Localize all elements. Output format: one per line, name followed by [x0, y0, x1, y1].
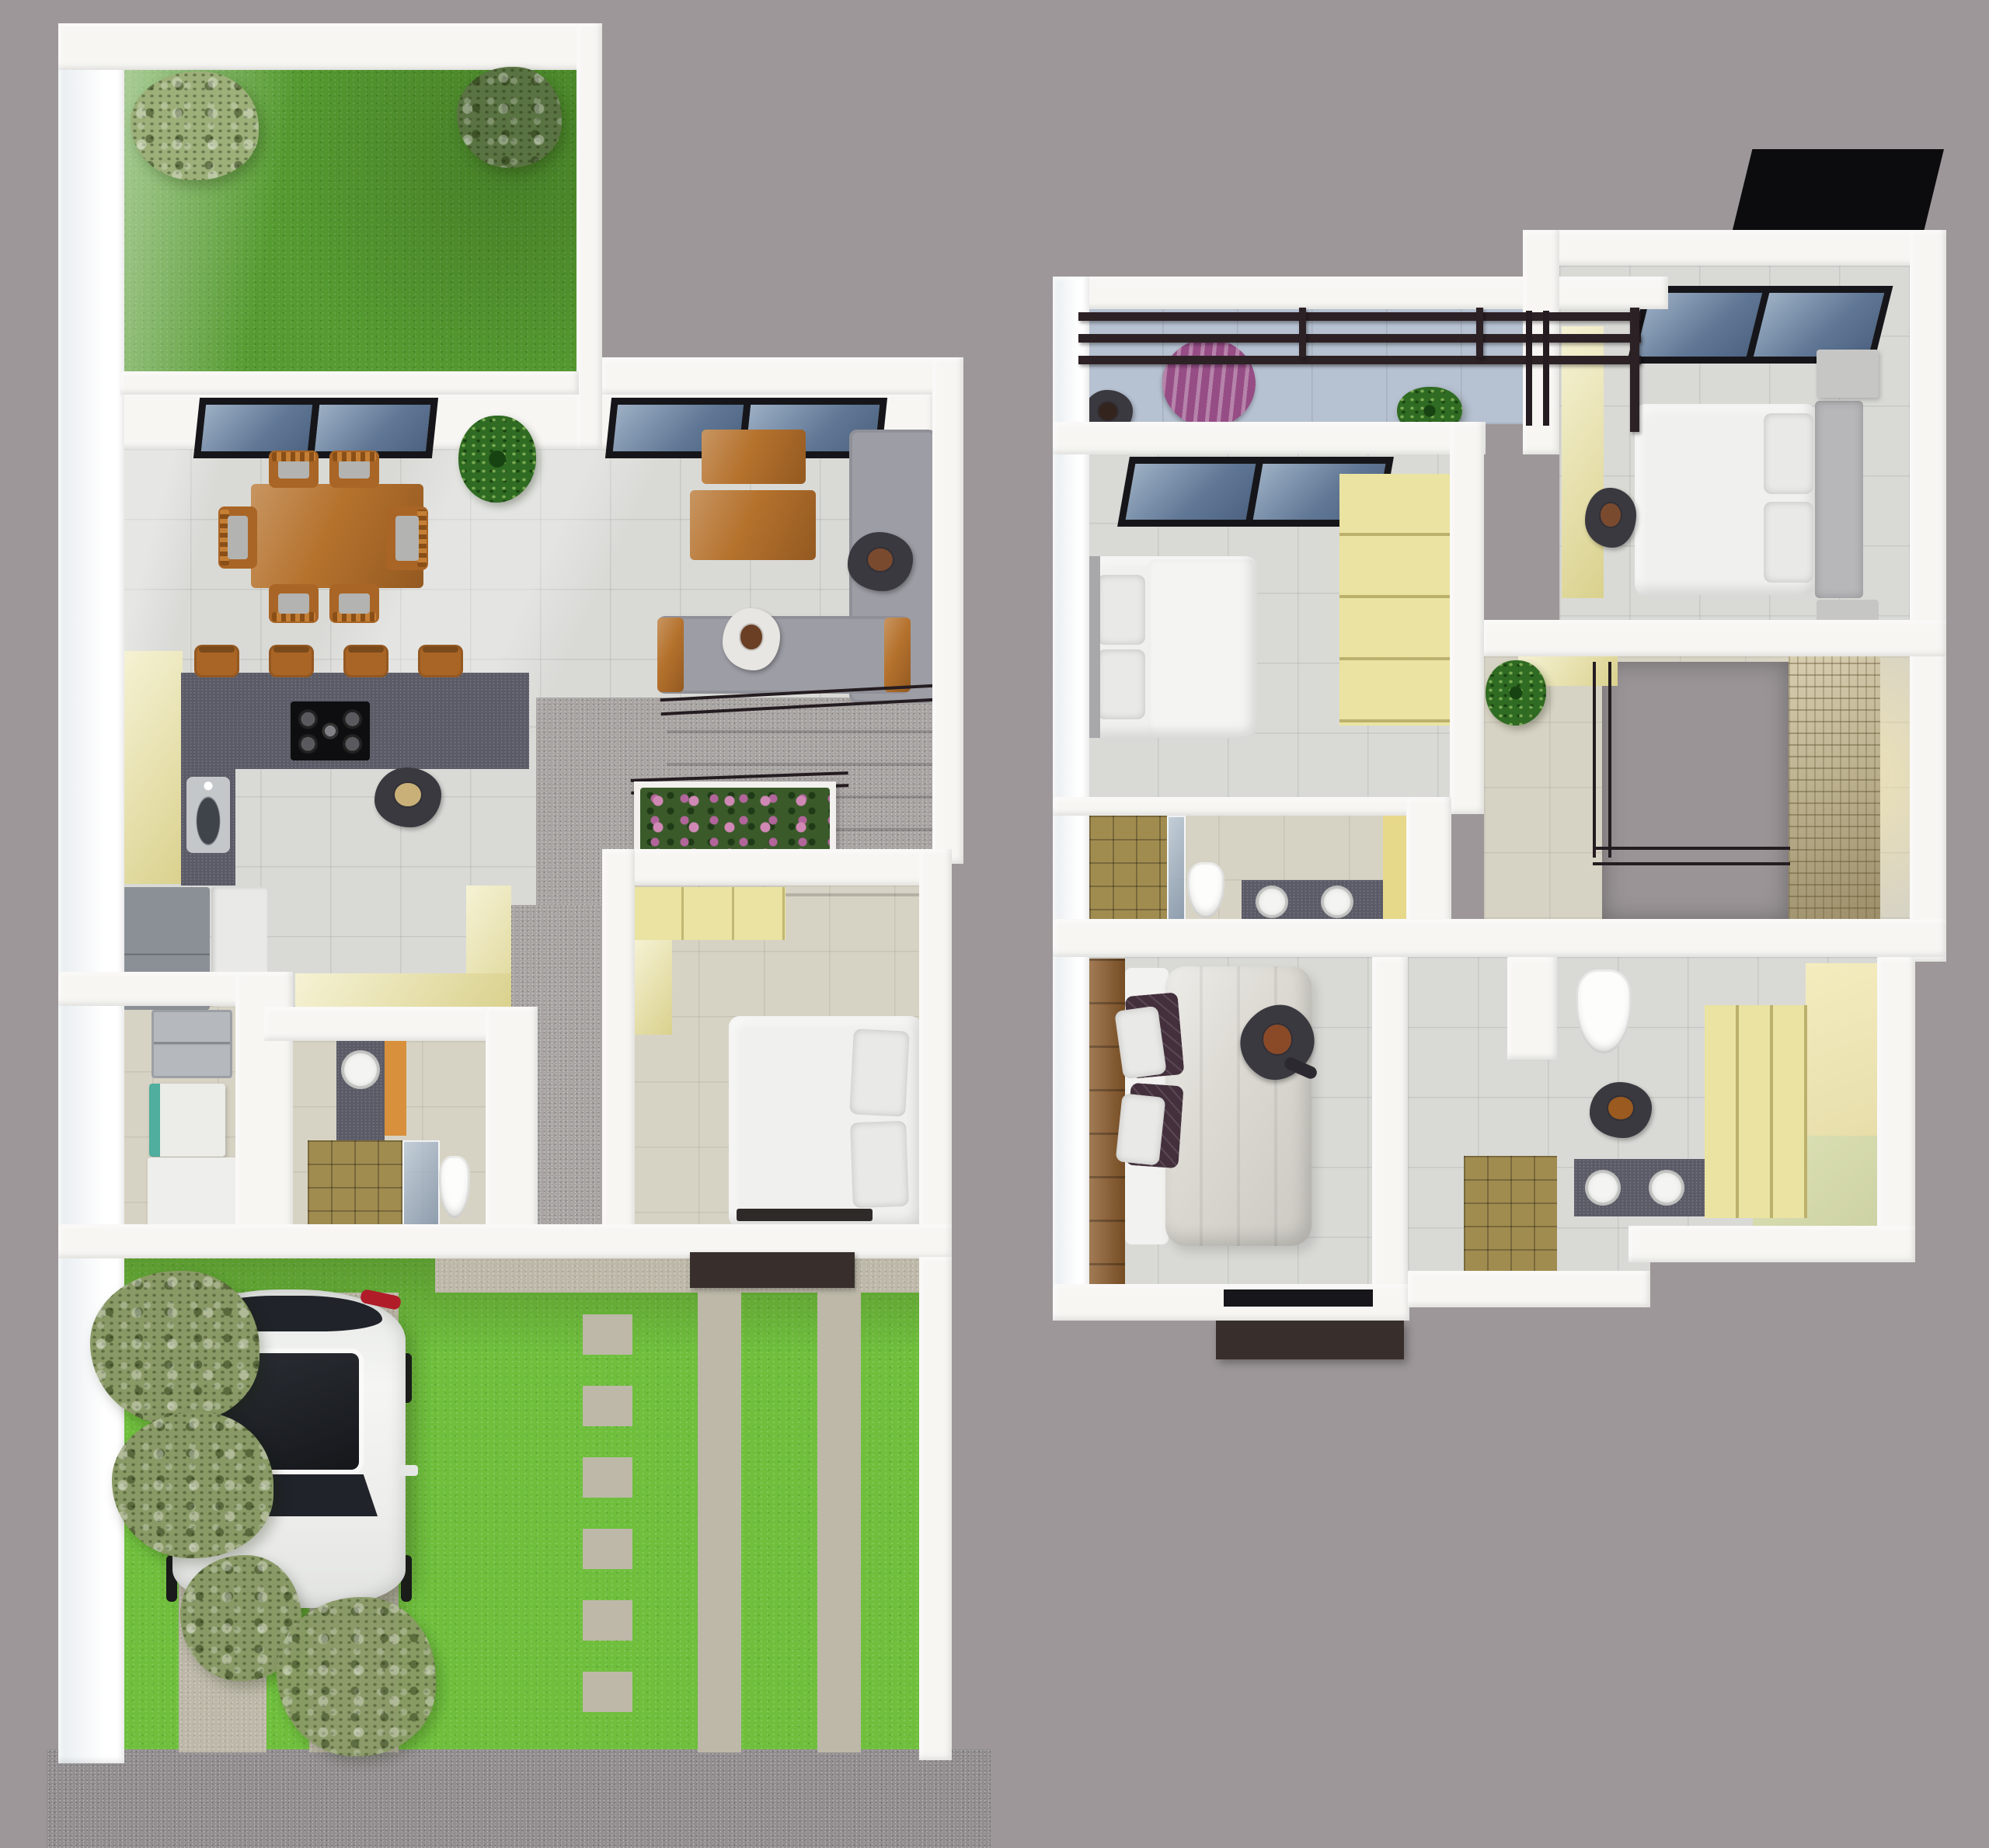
- washing-machine: [149, 1084, 225, 1157]
- master-window-slit: [1224, 1289, 1373, 1307]
- yard-tree: [90, 1271, 260, 1425]
- walk-in-wardrobe: [1705, 1005, 1807, 1218]
- pergola-cross-beam: [1299, 308, 1306, 357]
- dining-chair: [269, 584, 319, 623]
- wall: [1372, 957, 1408, 1321]
- stone-feature-wall: [1789, 656, 1880, 921]
- shared-bath-glass: [1167, 816, 1186, 922]
- wall: [1910, 230, 1946, 962]
- wall: [1406, 797, 1451, 926]
- bed-pillow: [1764, 502, 1813, 583]
- wall: [1507, 957, 1557, 1060]
- bedroom-front-headboard: [1815, 401, 1863, 598]
- skylight-panel: [1117, 457, 1266, 527]
- bed-pillow: [1764, 413, 1813, 494]
- wall: [1053, 919, 1946, 957]
- bar-stool: [418, 645, 463, 677]
- stair-void-opening: [1602, 662, 1789, 920]
- backyard-shrub-left: [131, 71, 259, 180]
- wall: [932, 357, 963, 864]
- yard-tree-overhang: [277, 1597, 436, 1756]
- dining-chair: [329, 584, 379, 623]
- bedroom-wardrobe: [633, 887, 785, 940]
- backyard-shrub-right: [457, 67, 562, 168]
- bed-pillow: [1097, 649, 1145, 719]
- master-gray-pillow: [1114, 1006, 1167, 1080]
- wall: [602, 357, 963, 395]
- bedroom-left-wardrobe: [1339, 474, 1451, 726]
- flower-planter: [634, 781, 836, 858]
- master-planter-box: [1216, 1321, 1404, 1359]
- skylight-panel: [193, 398, 325, 458]
- kitchen-wall-cabinet: [120, 651, 183, 884]
- wall: [919, 1257, 952, 1760]
- wall: [1450, 422, 1484, 814]
- person-in-kitchen: [370, 761, 446, 834]
- person-in-bedroom-front: [1582, 482, 1639, 555]
- gas-hob: [291, 701, 370, 760]
- dining-chair: [386, 506, 428, 570]
- bed-end-bench: [737, 1209, 873, 1221]
- kitchen-sink: [186, 777, 230, 853]
- person-on-master-bed: [1237, 997, 1318, 1089]
- person-in-master-bath: [1585, 1077, 1656, 1145]
- wall: [1877, 957, 1915, 1262]
- wall: [1523, 230, 1946, 266]
- pergola-cross-beam: [1476, 308, 1483, 357]
- bar-stool: [194, 645, 239, 677]
- round-basin: [1585, 1170, 1621, 1206]
- sofa-arm-left: [657, 618, 684, 692]
- bedroom-front-wardrobe-strip: [1562, 326, 1604, 598]
- wall: [919, 849, 952, 1261]
- floor-plan-scene: 3D rendered house floor plans, top-down …: [0, 0, 1989, 1848]
- wall: [1053, 277, 1668, 309]
- nightstand: [1817, 350, 1879, 398]
- skylight-panel: [307, 398, 438, 458]
- wall: [1053, 422, 1486, 454]
- wall: [602, 849, 635, 1258]
- wall: [58, 23, 602, 70]
- bed-pillow: [1097, 575, 1145, 645]
- car-mirror: [398, 1465, 418, 1476]
- round-basin: [1649, 1170, 1684, 1206]
- shared-bath-yellow-wall: [1383, 814, 1408, 921]
- balcony-window-frames: [1526, 311, 1560, 426]
- round-basin: [1321, 886, 1353, 918]
- shared-bath-shower: [1089, 816, 1167, 919]
- void-railing-vertical: [1593, 662, 1611, 858]
- hallway-plant: [1486, 660, 1546, 726]
- dining-chair: [269, 451, 319, 488]
- entry-door-mat: [690, 1252, 855, 1288]
- person-on-armchair: [843, 527, 918, 598]
- bedroom-left-headboard: [1089, 556, 1100, 738]
- bed-pillow: [849, 1028, 910, 1117]
- bath-orange-cabinet: [385, 1041, 406, 1136]
- dining-chair: [329, 451, 379, 488]
- sofa-arm-right: [884, 618, 911, 692]
- wall: [1482, 620, 1946, 656]
- wall: [1628, 1226, 1915, 1262]
- utility-wall-shelf: [152, 1010, 232, 1078]
- sidewalk: [47, 1749, 991, 1848]
- wall: [486, 1007, 538, 1258]
- wall: [1408, 1271, 1650, 1307]
- paver-stripe-group: [698, 1293, 923, 1752]
- paver-square-column: [583, 1314, 632, 1718]
- wall: [120, 371, 579, 395]
- wall: [1053, 797, 1451, 816]
- shower-glass-panel: [402, 1140, 440, 1230]
- sofa-horizontal: [657, 616, 911, 694]
- bath-round-basin: [341, 1050, 380, 1089]
- wall: [602, 849, 952, 886]
- bar-stool: [269, 645, 314, 677]
- shower-area: [308, 1140, 402, 1227]
- bedroom-left-mattress: [1148, 559, 1256, 736]
- sofa-side-table: [702, 430, 806, 484]
- dining-chair: [218, 506, 257, 569]
- wall: [576, 23, 602, 449]
- potted-plant: [458, 416, 536, 503]
- pergola-post: [1630, 308, 1639, 432]
- person-on-sofa: [719, 602, 784, 678]
- master-bath-shower: [1464, 1156, 1557, 1272]
- round-basin: [1256, 886, 1288, 918]
- master-gray-pillow: [1116, 1093, 1166, 1165]
- bedroom-side-cabinet: [633, 940, 672, 1035]
- yard-tree: [112, 1412, 273, 1558]
- roof-slab: [1731, 149, 1944, 236]
- coffee-table: [690, 490, 816, 560]
- void-railing-horizontal: [1593, 847, 1790, 865]
- bed-pillow: [850, 1121, 909, 1208]
- bar-stool: [343, 645, 388, 677]
